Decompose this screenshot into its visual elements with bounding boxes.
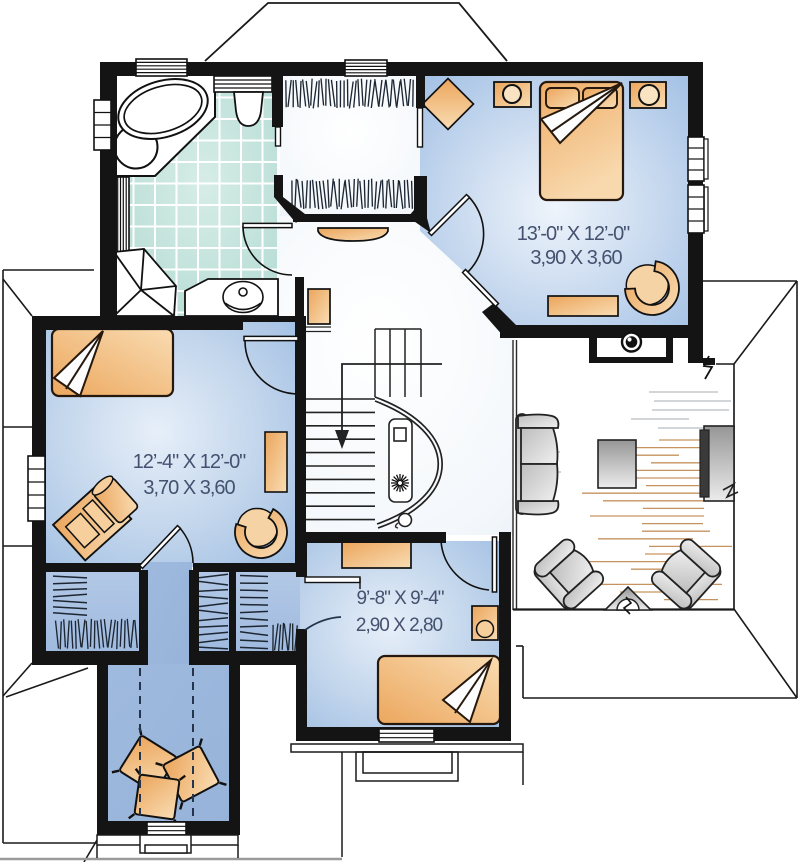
svg-text:3,90 X 3,60: 3,90 X 3,60 [530, 247, 622, 269]
svg-text:3,70 X 3,60: 3,70 X 3,60 [143, 477, 235, 499]
svg-text:13’-0" X 12’-0": 13’-0" X 12’-0" [517, 223, 630, 245]
svg-text:9’-8" X 9’-4": 9’-8" X 9’-4" [356, 588, 443, 609]
svg-text:2,90 X 2,80: 2,90 X 2,80 [356, 615, 443, 636]
svg-text:12’-4" X 12’-0": 12’-4" X 12’-0" [133, 451, 246, 473]
